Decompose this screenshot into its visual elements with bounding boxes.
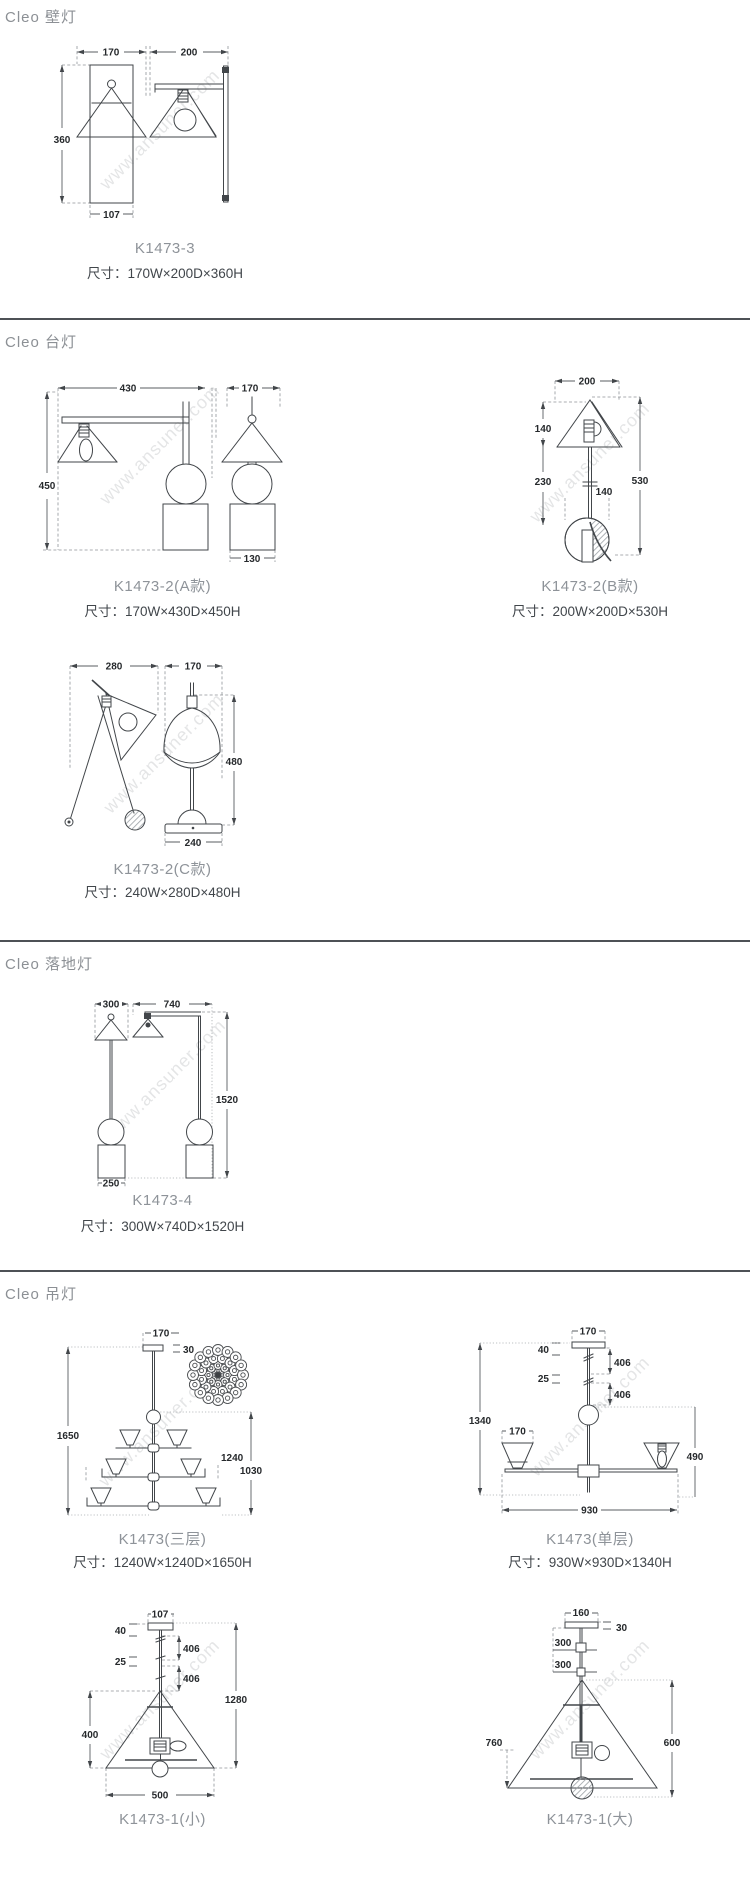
dimension-lines: [95, 1002, 229, 1187]
dim-canopy: 160: [573, 1608, 590, 1619]
pendant-small-drawing: 107 40 406 25 406 1280 400 500: [55, 1605, 255, 1805]
product-size: 尺寸：170W×200D×360H: [40, 262, 290, 282]
section-header-floor-lamp: Cleo 落地灯: [5, 953, 93, 974]
dim-width: 300: [103, 1000, 120, 1011]
dim-base: 130: [244, 554, 261, 565]
lamp-body: [557, 400, 622, 562]
dim-height: 530: [632, 476, 649, 487]
product-code: K1473-4: [35, 1192, 290, 1209]
dim-depth: 200: [181, 48, 198, 59]
dim-rod1: 300: [555, 1638, 572, 1649]
dim-width: 200: [579, 377, 596, 388]
dim-canopy: 107: [152, 1610, 169, 1621]
product-size: 尺寸：300W×740D×1520H: [35, 1215, 290, 1235]
spec-sheet-page: Cleo 壁灯 Cleo 台灯 Cleo 落地灯 Cleo 吊灯 www.ans…: [0, 0, 750, 1894]
product-size: 尺寸：200W×200D×530H: [460, 600, 720, 620]
dim-height: 1280: [225, 1695, 248, 1706]
dim-ball: 140: [596, 487, 613, 498]
lamp-body: [508, 1622, 657, 1799]
product-size: 尺寸：240W×280D×480H: [35, 881, 290, 901]
dim-height: 1340: [469, 1416, 492, 1427]
side-view: [65, 680, 156, 830]
product-code: K1473(三层): [35, 1528, 290, 1549]
side-view: [150, 66, 229, 202]
dim-shade-width: 107: [103, 210, 120, 221]
dim-canopy-height: 30: [616, 1623, 628, 1634]
front-view: [164, 683, 222, 833]
product-size: 尺寸：170W×430D×450H: [35, 600, 290, 620]
dim-rod2: 406: [183, 1674, 200, 1685]
dim-canopy: 170: [580, 1327, 597, 1338]
dim-rod1: 406: [614, 1358, 631, 1369]
dim-canopy: 170: [153, 1329, 170, 1340]
dim-height: 360: [54, 135, 71, 146]
dimension-lines: [70, 664, 236, 846]
product-size: 尺寸：1240W×1240D×1650H: [35, 1551, 290, 1571]
dim-width: 170: [242, 384, 259, 395]
section-header-wall-lamp: Cleo 壁灯: [5, 6, 77, 27]
dim-shade-height: 400: [82, 1730, 99, 1741]
dim-shade-height: 600: [664, 1738, 681, 1749]
front-view: [222, 397, 282, 550]
product-code: K1473-2(A款): [35, 575, 290, 596]
dim-canopy-height: 30: [183, 1345, 195, 1356]
product-code: K1473-2(C款): [35, 858, 290, 879]
dim-shade: 170: [509, 1427, 526, 1438]
chandelier-top-view: [188, 1345, 249, 1406]
product-code: K1473(单层): [460, 1528, 720, 1549]
pendant-large-drawing: 160 30 300 300 760 600: [420, 1605, 705, 1805]
dim-body-height: 1030: [240, 1466, 263, 1477]
dim-width: 1240: [221, 1453, 244, 1464]
product-code: K1473-1(大): [460, 1808, 720, 1829]
product-code: K1473-3: [40, 240, 290, 257]
dim-top: 40: [538, 1345, 550, 1356]
dim-shade-width: 760: [486, 1738, 503, 1749]
dim-body-height: 490: [687, 1452, 704, 1463]
dim-width: 930: [581, 1506, 598, 1517]
dim-rod2: 300: [555, 1660, 572, 1671]
dimension-lines: [60, 46, 228, 218]
dim-height: 450: [39, 481, 56, 492]
dim-rod2: 406: [614, 1390, 631, 1401]
product-code: K1473-2(B款): [460, 575, 720, 596]
lamp-body: [502, 1342, 679, 1492]
table-lamp-b-drawing: 200 140 230 530 140: [455, 372, 665, 572]
product-size: 尺寸：930W×930D×1340H: [460, 1551, 720, 1571]
dim-shade-height: 140: [535, 424, 552, 435]
dim-width: 170: [103, 48, 120, 59]
side-view: [58, 402, 208, 550]
dim-base: 240: [185, 838, 202, 849]
pendant-single-tier-drawing: 170 40 406 25 406 1340 170 490 930: [452, 1322, 720, 1522]
product-code: K1473-1(小): [35, 1808, 290, 1829]
dim-mid: 25: [115, 1657, 127, 1668]
dim-height: 1520: [216, 1095, 239, 1106]
section-divider: [0, 940, 750, 942]
dim-base: 250: [103, 1179, 120, 1190]
front-view: [77, 65, 146, 203]
pendant-three-tier-drawing: 170 30 1650 1240 1030: [45, 1322, 290, 1522]
front-view: [95, 1014, 127, 1178]
table-lamp-c-drawing: 280 170 480 240: [48, 658, 253, 853]
wall-lamp-drawing: 170 200 360 107: [40, 38, 320, 233]
side-view: [133, 1012, 213, 1178]
dim-height: 480: [226, 757, 243, 768]
dim-mid: 25: [538, 1374, 550, 1385]
dim-depth: 430: [120, 384, 137, 395]
section-divider: [0, 1270, 750, 1272]
section-divider: [0, 318, 750, 320]
section-header-pendant-lamp: Cleo 吊灯: [5, 1283, 77, 1304]
dim-width: 170: [185, 662, 202, 673]
table-lamp-a-drawing: 430 170 450 130: [38, 378, 303, 570]
section-header-table-lamp: Cleo 台灯: [5, 331, 77, 352]
dim-height: 1650: [57, 1431, 80, 1442]
dim-rod1: 406: [183, 1644, 200, 1655]
dim-width: 500: [152, 1791, 169, 1802]
dim-rod: 230: [535, 477, 552, 488]
floor-lamp-drawing: 300 740 1520 250: [82, 995, 252, 1193]
dim-depth: 740: [164, 1000, 181, 1011]
dim-depth: 280: [106, 662, 123, 673]
dim-top: 40: [115, 1626, 127, 1637]
